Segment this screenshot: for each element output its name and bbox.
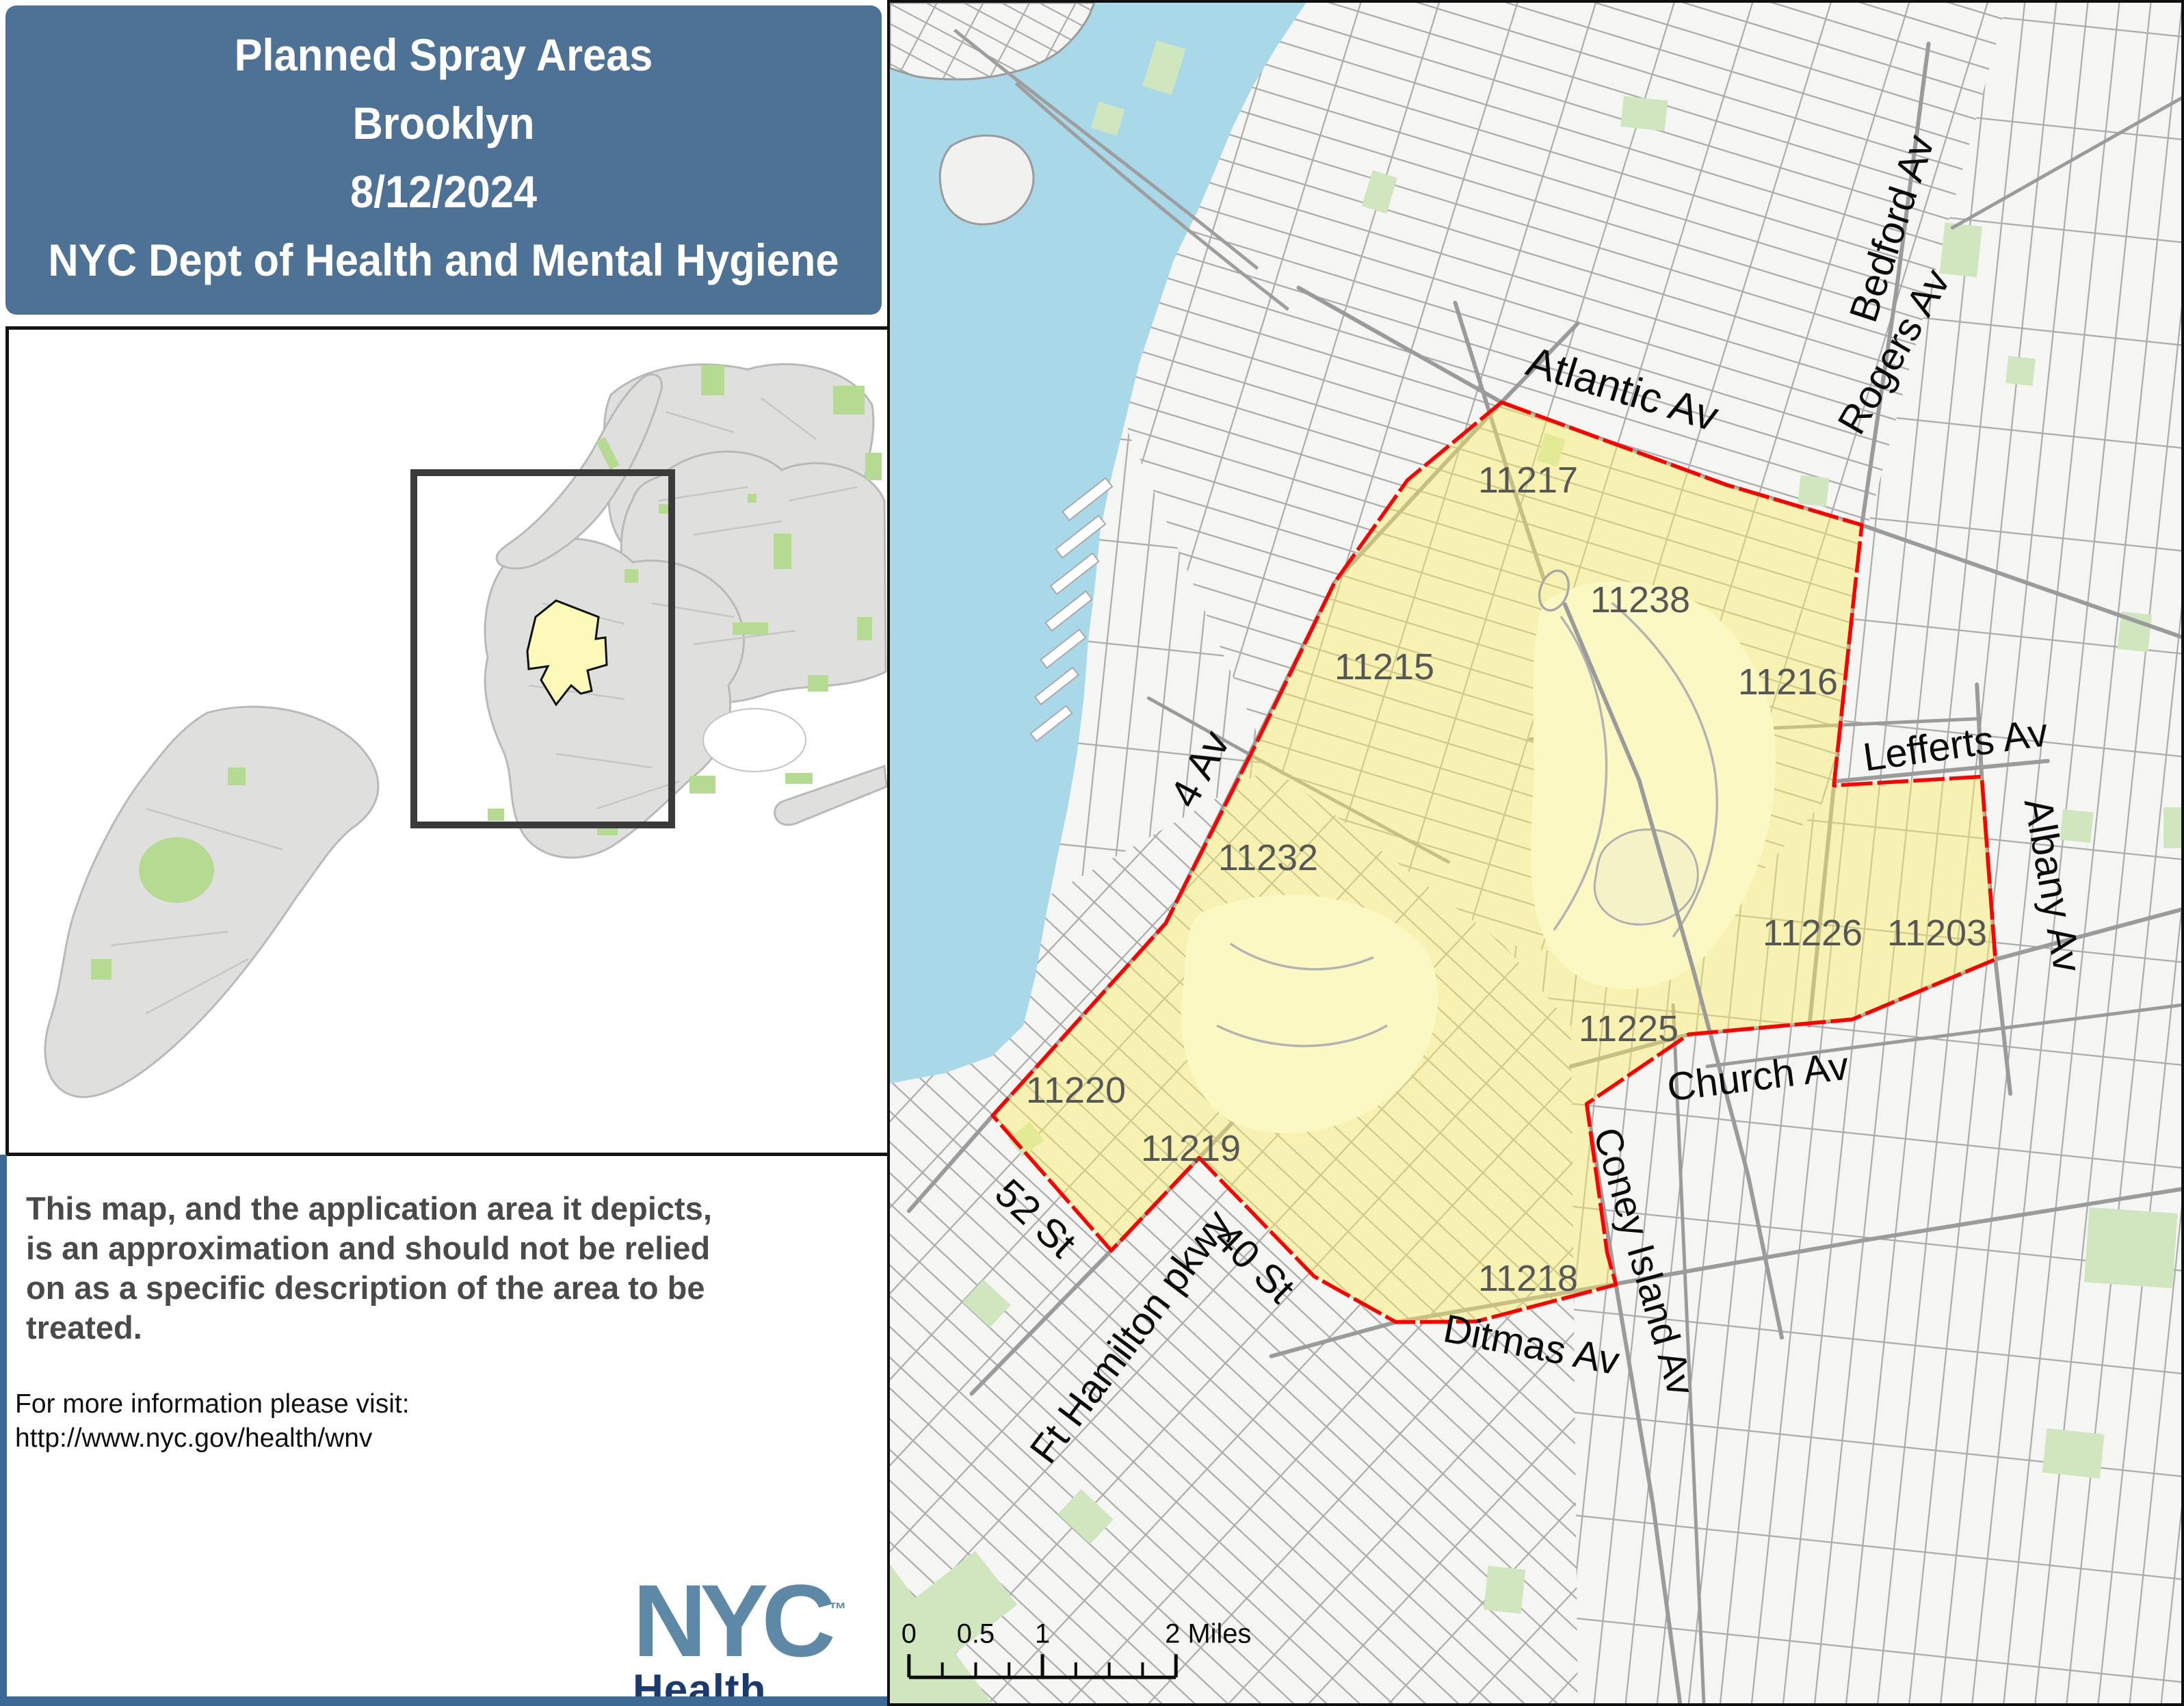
zip-label-11219: 11219 (1141, 1127, 1241, 1170)
zip-label-11217: 11217 (1478, 459, 1578, 501)
more-info-label: For more information please visit: (15, 1387, 856, 1421)
street-label-52-st: 52 St (986, 1170, 1086, 1266)
street-label-lefferts-av: Lefferts Av (1860, 709, 2051, 780)
disclaimer-line: on as a specific description of the area… (26, 1268, 867, 1308)
left-panel: Planned Spray Areas Brooklyn 8/12/2024 N… (0, 0, 887, 1706)
jamaica-bay-water (703, 709, 806, 772)
disclaimer-line: treated. (26, 1308, 867, 1348)
street-label-ditmas-av: Ditmas Av (1440, 1305, 1623, 1384)
zip-label-11216: 11216 (1738, 661, 1838, 703)
zip-label-11225: 11225 (1579, 1008, 1679, 1050)
nyc-boroughs-map (9, 330, 887, 1153)
planned-spray-areas-map-page: Planned Spray Areas Brooklyn 8/12/2024 N… (0, 0, 2184, 1706)
zip-label-11226: 11226 (1763, 912, 1863, 954)
disclaimer-line: This map, and the application area it de… (26, 1189, 867, 1229)
health-wnv-url[interactable]: http://www.nyc.gov/health/wnv (15, 1421, 856, 1456)
nyc-logo-wordmark: NYC™ (633, 1561, 858, 1668)
street-label-atlantic-av: Atlantic Av (1521, 337, 1724, 441)
left-accent-bar (0, 1155, 7, 1706)
zip-label-11238: 11238 (1590, 579, 1690, 621)
zip-label-11218: 11218 (1478, 1257, 1578, 1300)
street-label-albany-av: Albany Av (2015, 795, 2091, 976)
disclaimer-text: This map, and the application area it de… (26, 1189, 867, 1348)
spray-date: 8/12/2024 (36, 157, 851, 226)
disclaimer-line: is an approximation and should not be re… (26, 1229, 867, 1268)
title-text-block: Planned Spray Areas Brooklyn 8/12/2024 N… (36, 21, 851, 294)
zip-label-11232: 11232 (1218, 837, 1318, 879)
nyc-health-logo: NYC™ Health (633, 1561, 858, 1706)
zip-label-11215: 11215 (1334, 646, 1434, 688)
page-title: Planned Spray Areas (36, 21, 851, 89)
brooklyn-spray-map: 0 0.5 1 2 Miles 112171123811215112161123… (887, 0, 2184, 1706)
title-banner: Planned Spray Areas Brooklyn 8/12/2024 N… (5, 5, 882, 315)
map-label-layer: 1121711238112151121611232112261120311225… (890, 3, 2181, 1703)
trademark-symbol: ™ (829, 1599, 847, 1619)
staten-island-landmass (45, 707, 378, 1097)
bottom-accent-bar (0, 1696, 887, 1706)
agency-name: NYC Dept of Health and Mental Hygiene (36, 226, 851, 294)
zip-label-11203: 11203 (1887, 912, 1987, 954)
street-label-church-av: Church Av (1665, 1043, 1852, 1111)
zip-label-11220: 11220 (1026, 1069, 1126, 1112)
street-label-4-av: 4 Av (1160, 723, 1239, 815)
nyc-locator-inset-map (5, 326, 891, 1156)
more-info-block: For more information please visit: http:… (15, 1387, 856, 1456)
borough-subtitle: Brooklyn (36, 89, 851, 157)
